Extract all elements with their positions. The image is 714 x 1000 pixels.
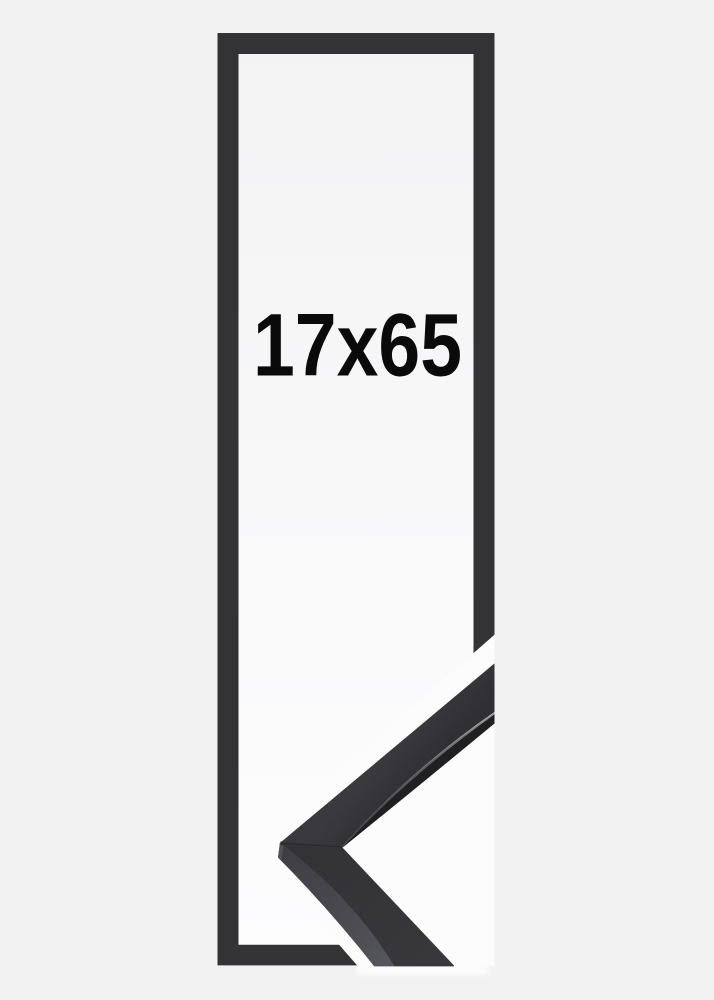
svg-text:17x65: 17x65	[253, 295, 462, 395]
